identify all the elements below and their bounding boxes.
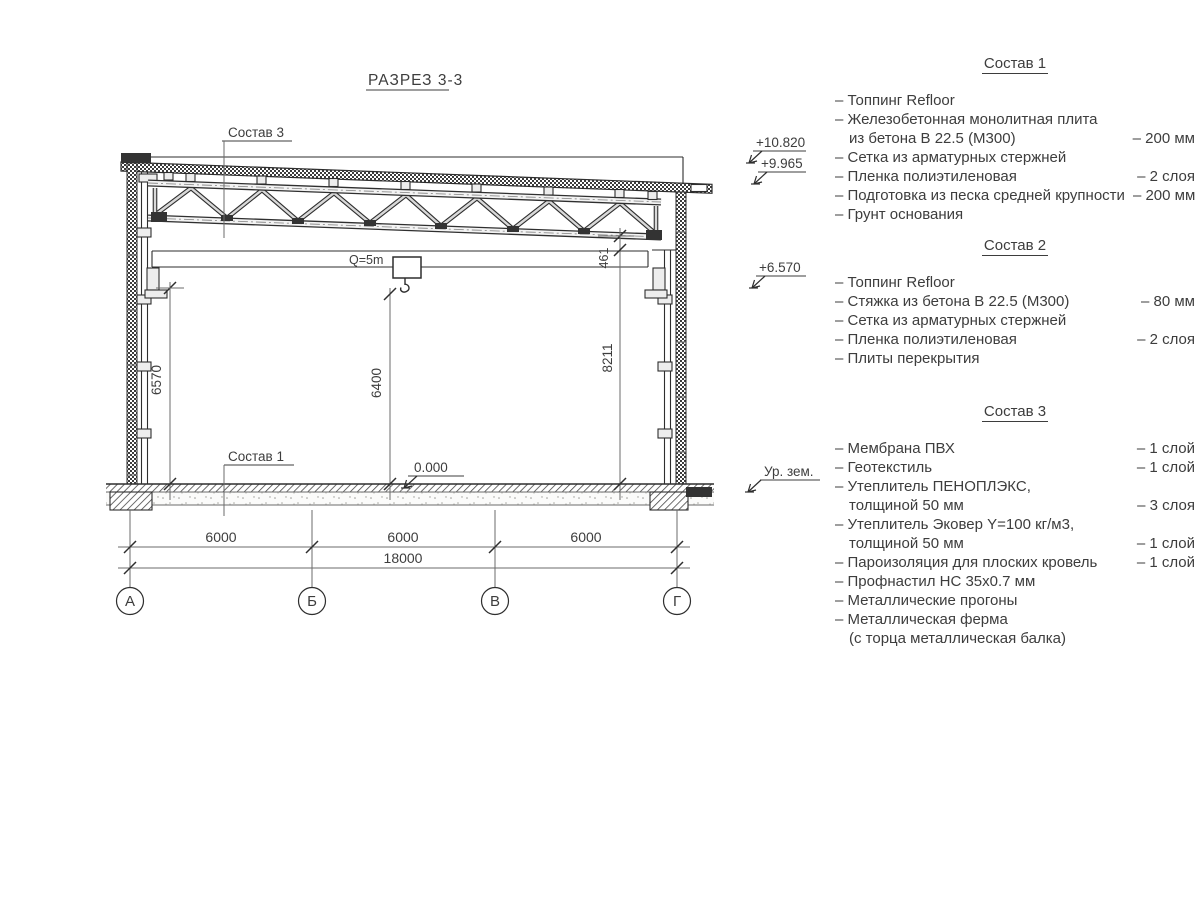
composition-list-1: Состав 1 – Топпинг Refloor – Железобетон… [835, 54, 1195, 224]
dim-6570: 6570 [149, 365, 164, 395]
dim-8211: 8211 [600, 343, 615, 372]
list-item: – Пленка полиэтиленовая– 2 слоя [835, 330, 1195, 349]
drawing-title: РАЗРЕЗ 3-3 [366, 72, 463, 90]
axis-v: В [490, 593, 500, 610]
list-item: толщиной 50 мм– 1 слой [835, 534, 1195, 553]
svg-text:+9.965: +9.965 [761, 156, 803, 171]
list-item: – Утеплитель ПЕНОПЛЭКС, [835, 477, 1195, 496]
list-item: – Железобетонная монолитная плита [835, 110, 1195, 129]
list-item: толщиной 50 мм– 3 слоя [835, 496, 1195, 515]
svg-text:+6.570: +6.570 [759, 260, 801, 275]
dim-6400: 6400 [369, 368, 384, 398]
elevation-roof-low: +9.965 [751, 156, 806, 184]
list-item: – Плиты перекрытия [835, 349, 1195, 368]
list-item: – Пароизоляция для плоских кровель– 1 сл… [835, 553, 1195, 572]
composition-list-3: Состав 3 – Мембрана ПВХ– 1 слой – Геотек… [835, 402, 1195, 648]
callout-roof-label: Состав 3 [228, 125, 284, 140]
axis-b: Б [307, 593, 317, 610]
list-item: – Сетка из арматурных стержней [835, 311, 1195, 330]
list-item: – Металлические прогоны [835, 591, 1195, 610]
composition-title: Состав 2 [835, 236, 1195, 255]
dim-span-2: 6000 [387, 529, 418, 545]
crane-console-right [653, 268, 665, 290]
list-item: (с торца металлическая балка) [835, 629, 1195, 648]
section-title-text: РАЗРЕЗ 3-3 [368, 72, 463, 89]
bottom-dimensions: 6000 6000 6000 18000 [118, 510, 690, 587]
list-item: – Металлическая ферма [835, 610, 1195, 629]
list-item: – Утеплитель Эковер Y=100 кг/м3, [835, 515, 1195, 534]
elevation-crane: +6.570 [749, 260, 806, 288]
roof-edge-beam [691, 185, 707, 192]
dim-461: 461 [597, 248, 611, 269]
overhead-crane: Q=5m [145, 251, 667, 298]
list-item: – Профнастил НС 35х0.7 мм [835, 572, 1195, 591]
callout-floor-label: Состав 1 [228, 449, 284, 464]
list-item: – Мембрана ПВХ– 1 слой [835, 439, 1195, 458]
axis-g: Г [673, 593, 681, 610]
elevation-marks: +10.820 +9.965 +6.570 Ур. зем. [745, 135, 820, 492]
crane-console-left [147, 268, 159, 290]
crane-trolley [393, 257, 421, 278]
list-item: – Грунт основания [835, 205, 1195, 224]
composition-rows: – Мембрана ПВХ– 1 слой – Геотекстиль– 1 … [835, 439, 1195, 648]
parapet-cap [121, 153, 151, 163]
composition-list-2: Состав 2 – Топпинг Refloor – Стяжка из б… [835, 236, 1195, 368]
composition-title: Состав 1 [835, 54, 1195, 73]
crane-capacity-label: Q=5m [349, 253, 383, 267]
list-item: – Сетка из арматурных стержней [835, 148, 1195, 167]
axis-bubbles: А Б В Г [117, 588, 691, 615]
purlin [164, 173, 173, 181]
composition-rows: – Топпинг Refloor – Железобетонная монол… [835, 91, 1195, 224]
callout-sostav-1: Состав 1 [224, 449, 294, 516]
list-item: – Топпинг Refloor [835, 91, 1195, 110]
zero-level-label: 0.000 [414, 460, 448, 475]
composition-rows: – Топпинг Refloor – Стяжка из бетона В 2… [835, 273, 1195, 368]
list-item: – Геотекстиль– 1 слой [835, 458, 1195, 477]
elevation-ground: Ур. зем. [745, 464, 820, 492]
svg-text:+10.820: +10.820 [756, 135, 805, 150]
list-item: – Топпинг Refloor [835, 273, 1195, 292]
axis-a: А [125, 593, 135, 610]
drawing-sheet: { "section": { "title": "РАЗРЕЗ 3-3", "c… [0, 0, 1200, 900]
dim-span-1: 6000 [205, 529, 236, 545]
crane-hook [401, 284, 409, 292]
list-item: – Стяжка из бетона В 22.5 (М300)– 80 мм [835, 292, 1195, 311]
composition-title: Состав 3 [835, 402, 1195, 421]
dim-span-3: 6000 [570, 529, 601, 545]
footing-left [110, 492, 152, 510]
list-item: – Подготовка из песка средней крупности–… [835, 186, 1195, 205]
list-item: – Пленка полиэтиленовая– 2 слоя [835, 167, 1195, 186]
footing-right [650, 492, 688, 510]
svg-text:Ур. зем.: Ур. зем. [764, 464, 814, 479]
dim-total: 18000 [384, 550, 423, 566]
list-item: из бетона В 22.5 (М300)– 200 мм [835, 129, 1195, 148]
vertical-dimensions: 6570 6400 8211 461 [149, 228, 634, 500]
